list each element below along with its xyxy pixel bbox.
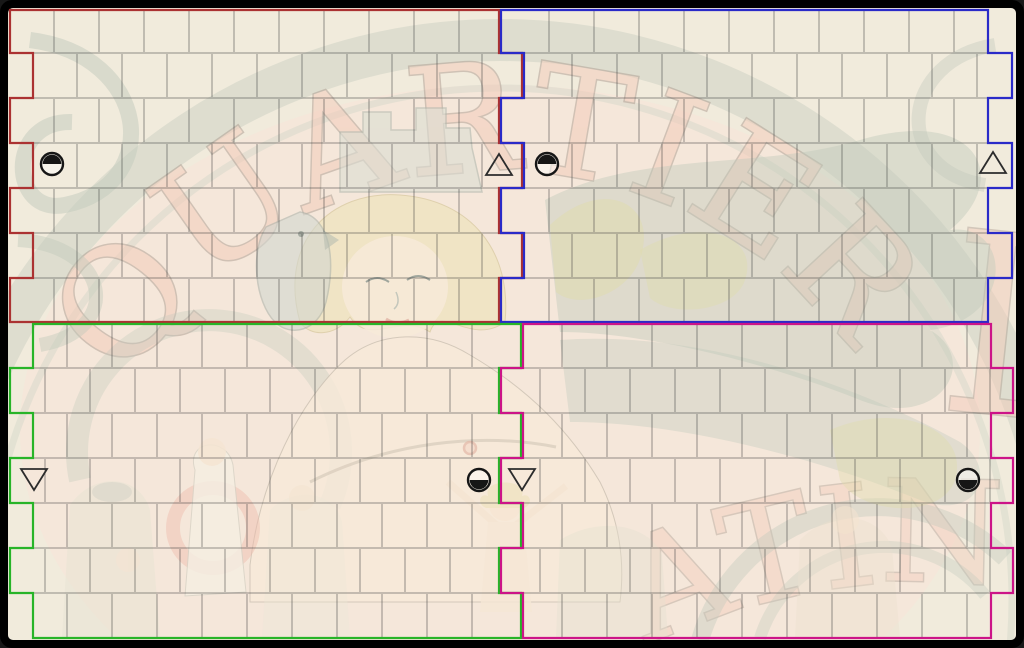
circle-top-icon	[41, 153, 63, 175]
puzzle-board-svg: QUARTIER L ATIN	[0, 0, 1024, 648]
circle-top-icon	[536, 153, 558, 175]
circle-bottom-icon	[468, 469, 490, 491]
circle-bottom-icon	[957, 469, 979, 491]
puzzle-board: QUARTIER L ATIN	[0, 0, 1024, 648]
background-artwork: QUARTIER L ATIN	[0, 8, 1024, 648]
